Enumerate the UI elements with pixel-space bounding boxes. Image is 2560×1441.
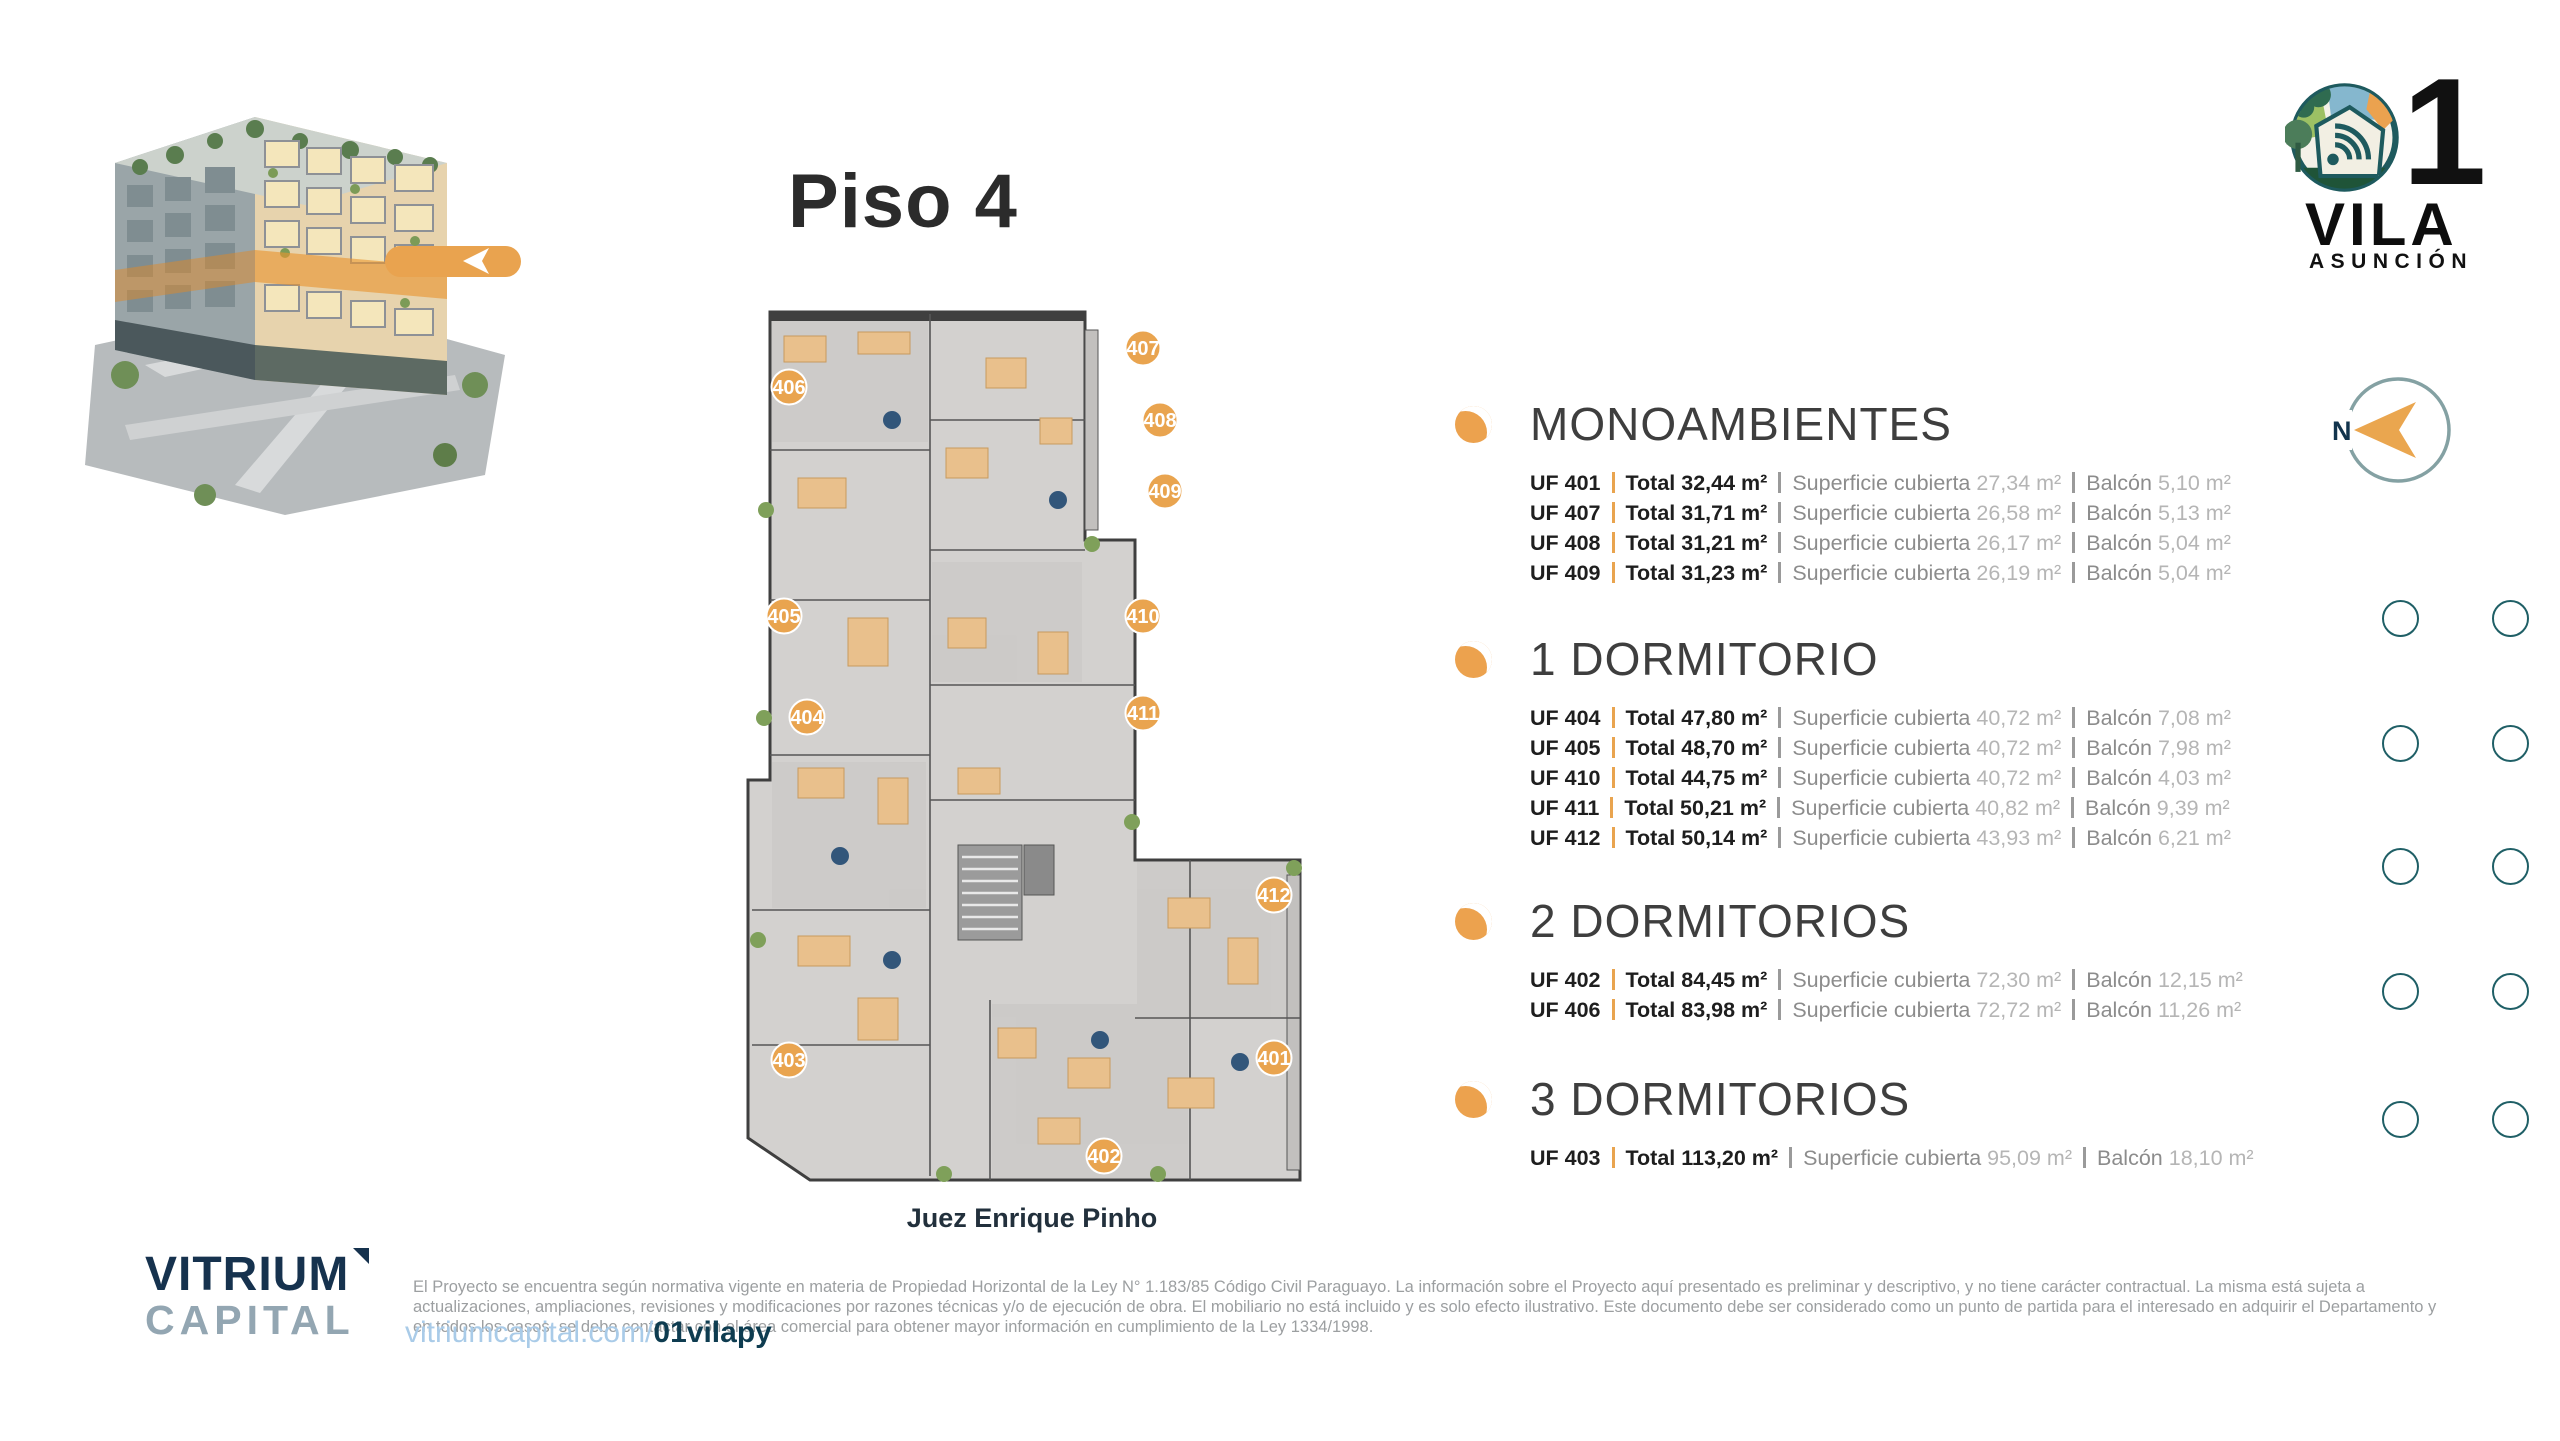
svg-text:401: 401 (1257, 1048, 1290, 1070)
separator (1612, 707, 1615, 728)
section-3-dormitorios: 3 DORMITORIOSUF 403Total 113,20 m²Superf… (1455, 1073, 2415, 1173)
section-bullet-icon (1455, 406, 1492, 443)
unit-uf: UF 407 (1530, 501, 1601, 525)
unit-badge-408[interactable]: 408 (1143, 403, 1178, 438)
unit-bal_label: Balcón (2097, 1146, 2163, 1170)
separator (2072, 707, 2075, 728)
svg-text:410: 410 (1126, 606, 1159, 628)
separator (1778, 737, 1781, 758)
unit-bal_label: Balcón (2085, 796, 2151, 820)
unit-bal: 5,13 m² (2158, 501, 2231, 525)
unit-total: Total 83,98 m² (1626, 998, 1768, 1022)
website-slug[interactable]: 01vilapy (653, 1316, 771, 1349)
unit-sup: 40,72 m² (1976, 706, 2061, 730)
unit-sup_label: Superficie cubierta (1792, 501, 1970, 525)
compass: N (2328, 360, 2468, 500)
unit-bal_label: Balcón (2086, 706, 2152, 730)
unit-bal: 5,10 m² (2158, 471, 2231, 495)
floorplan: 406407408409405410404411412403401402 Jue… (740, 300, 1310, 1240)
unit-sup: 26,17 m² (1976, 531, 2061, 555)
separator (1612, 502, 1615, 523)
separator (1612, 999, 1615, 1020)
floor-dot[interactable] (2382, 725, 2419, 762)
unit-total: Total 113,20 m² (1626, 1146, 1779, 1170)
unit-bal_label: Balcón (2086, 531, 2152, 555)
unit-sup: 40,72 m² (1976, 766, 2061, 790)
floor-dot[interactable] (2492, 848, 2529, 885)
unit-bal_label: Balcón (2086, 471, 2152, 495)
unit-row: UF 410Total 44,75 m²Superficie cubierta … (1530, 763, 2415, 793)
section-title: MONOAMBIENTES (1530, 398, 1952, 450)
unit-total: Total 50,21 m² (1624, 796, 1766, 820)
svg-text:412: 412 (1257, 885, 1290, 907)
separator (2083, 1147, 2086, 1168)
unit-total: Total 32,44 m² (1626, 471, 1768, 495)
separator (1612, 532, 1615, 553)
unit-bal_label: Balcón (2086, 766, 2152, 790)
unit-bal_label: Balcón (2086, 736, 2152, 760)
separator (1778, 562, 1781, 583)
unit-badge-404[interactable]: 404 (790, 700, 825, 735)
unit-bal: 4,03 m² (2158, 766, 2231, 790)
unit-bal: 11,26 m² (2158, 998, 2241, 1022)
developer-name-line2: CAPITAL (145, 1298, 355, 1342)
brand-number: 1 (2402, 56, 2487, 208)
unit-uf: UF 402 (1530, 968, 1601, 992)
building-rendering (55, 45, 535, 520)
floor-dot[interactable] (2492, 600, 2529, 637)
section-bullet-icon (1455, 903, 1492, 940)
unit-badge-411[interactable]: 411 (1126, 696, 1161, 731)
unit-uf: UF 410 (1530, 766, 1601, 790)
website-link[interactable]: vitriumcapital.com/01vilapy (405, 1316, 772, 1350)
separator (2072, 999, 2075, 1020)
unit-sup: 95,09 m² (1987, 1146, 2072, 1170)
floor-dot[interactable] (2492, 1101, 2529, 1138)
svg-text:406: 406 (772, 377, 805, 399)
separator (1610, 797, 1613, 818)
separator (2072, 532, 2075, 553)
developer-name-line1: VITRIUM (145, 1252, 355, 1298)
unit-sup_label: Superficie cubierta (1792, 471, 1970, 495)
compass-north-label: N (2332, 416, 2352, 446)
separator (1778, 707, 1781, 728)
unit-sup_label: Superficie cubierta (1792, 998, 1970, 1022)
unit-total: Total 48,70 m² (1626, 736, 1768, 760)
unit-bal_label: Balcón (2086, 968, 2152, 992)
unit-badge-410[interactable]: 410 (1126, 599, 1161, 634)
separator (1612, 562, 1615, 583)
floor-dot[interactable] (2382, 848, 2419, 885)
separator (2072, 969, 2075, 990)
street-label: Juez Enrique Pinho (907, 1203, 1158, 1233)
vila-logo-icon (2285, 78, 2405, 198)
unit-badge-401[interactable]: 401 (1257, 1041, 1292, 1076)
separator (1778, 472, 1781, 493)
unit-sup: 26,58 m² (1976, 501, 2061, 525)
unit-bal: 5,04 m² (2158, 531, 2231, 555)
unit-bal: 9,39 m² (2157, 796, 2230, 820)
unit-bal_label: Balcón (2086, 826, 2152, 850)
unit-row: UF 409Total 31,23 m²Superficie cubierta … (1530, 558, 2415, 588)
separator (1778, 969, 1781, 990)
unit-badge-409[interactable]: 409 (1148, 474, 1183, 509)
developer-logo: VITRIUM CAPITAL (145, 1252, 355, 1342)
unit-uf: UF 409 (1530, 561, 1601, 585)
section-title: 2 DORMITORIOS (1530, 895, 1910, 947)
unit-sup_label: Superficie cubierta (1792, 826, 1970, 850)
separator (1612, 472, 1615, 493)
unit-uf: UF 408 (1530, 531, 1601, 555)
unit-total: Total 44,75 m² (1626, 766, 1768, 790)
separator (1778, 827, 1781, 848)
brand-name: VILA (2305, 190, 2458, 259)
separator (1612, 969, 1615, 990)
separator (2072, 502, 2075, 523)
unit-bal_label: Balcón (2086, 998, 2152, 1022)
svg-text:408: 408 (1143, 410, 1176, 432)
unit-uf: UF 401 (1530, 471, 1601, 495)
unit-sup: 43,93 m² (1976, 826, 2061, 850)
separator (2072, 767, 2075, 788)
unit-row: UF 403Total 113,20 m²Superficie cubierta… (1530, 1143, 2415, 1173)
unit-total: Total 31,23 m² (1626, 561, 1768, 585)
svg-text:409: 409 (1148, 481, 1181, 503)
section-title: 3 DORMITORIOS (1530, 1073, 1910, 1125)
unit-badge-402[interactable]: 402 (1087, 1139, 1122, 1174)
floor-dot[interactable] (2492, 725, 2529, 762)
svg-text:403: 403 (772, 1050, 805, 1072)
unit-total: Total 50,14 m² (1626, 826, 1768, 850)
separator (1778, 999, 1781, 1020)
svg-text:402: 402 (1087, 1146, 1120, 1168)
unit-sup_label: Superficie cubierta (1803, 1146, 1981, 1170)
unit-bal: 18,10 m² (2169, 1146, 2254, 1170)
unit-sup: 72,72 m² (1976, 998, 2061, 1022)
brand-city: ASUNCIÓN (2309, 250, 2473, 274)
floor-dot[interactable] (2382, 1101, 2419, 1138)
svg-text:405: 405 (767, 606, 800, 628)
separator (1778, 532, 1781, 553)
unit-row: UF 405Total 48,70 m²Superficie cubierta … (1530, 733, 2415, 763)
unit-row: UF 404Total 47,80 m²Superficie cubierta … (1530, 703, 2415, 733)
unit-bal: 7,08 m² (2158, 706, 2231, 730)
unit-bal: 6,21 m² (2158, 826, 2231, 850)
unit-total: Total 31,71 m² (1626, 501, 1768, 525)
section-monoambientes: MONOAMBIENTESUF 401Total 32,44 m²Superfi… (1455, 398, 2415, 588)
svg-text:404: 404 (790, 707, 824, 729)
unit-sup: 40,72 m² (1976, 736, 2061, 760)
unit-sup_label: Superficie cubierta (1792, 968, 1970, 992)
svg-text:407: 407 (1126, 338, 1159, 360)
section-title: 1 DORMITORIO (1530, 633, 1879, 685)
unit-uf: UF 412 (1530, 826, 1601, 850)
section-bullet-icon (1455, 641, 1492, 678)
section-2-dormitorios: 2 DORMITORIOSUF 402Total 84,45 m²Superfi… (1455, 895, 2415, 1025)
unit-badge-403[interactable]: 403 (772, 1043, 807, 1078)
unit-bal_label: Balcón (2086, 501, 2152, 525)
unit-badge-406[interactable]: 406 (772, 370, 807, 405)
unit-uf: UF 404 (1530, 706, 1601, 730)
unit-uf: UF 406 (1530, 998, 1601, 1022)
floor-dot[interactable] (2382, 973, 2419, 1010)
floor-indicator-arrow[interactable] (385, 246, 521, 277)
unit-sup_label: Superficie cubierta (1792, 766, 1970, 790)
unit-uf: UF 403 (1530, 1146, 1601, 1170)
floor-dot[interactable] (2492, 973, 2529, 1010)
section-1-dormitorio: 1 DORMITORIOUF 404Total 47,80 m²Superfic… (1455, 633, 2415, 853)
separator (1778, 767, 1781, 788)
unit-row: UF 402Total 84,45 m²Superficie cubierta … (1530, 965, 2415, 995)
unit-sup: 40,82 m² (1975, 796, 2060, 820)
unit-sup_label: Superficie cubierta (1792, 736, 1970, 760)
unit-bal: 7,98 m² (2158, 736, 2231, 760)
unit-sup_label: Superficie cubierta (1792, 706, 1970, 730)
unit-row: UF 408Total 31,21 m²Superficie cubierta … (1530, 528, 2415, 558)
unit-total: Total 47,80 m² (1626, 706, 1768, 730)
separator (2071, 797, 2074, 818)
unit-total: Total 31,21 m² (1626, 531, 1768, 555)
unit-uf: UF 405 (1530, 736, 1601, 760)
separator (1612, 827, 1615, 848)
unit-row: UF 407Total 31,71 m²Superficie cubierta … (1530, 498, 2415, 528)
separator (1612, 737, 1615, 758)
separator (1612, 1147, 1615, 1168)
unit-sup_label: Superficie cubierta (1792, 531, 1970, 555)
unit-bal_label: Balcón (2086, 561, 2152, 585)
unit-badge-405[interactable]: 405 (767, 599, 802, 634)
separator (1612, 767, 1615, 788)
website-base[interactable]: vitriumcapital.com/ (405, 1316, 653, 1349)
project-logo: 1 VILA ASUNCIÓN (2285, 78, 2515, 288)
separator (2072, 737, 2075, 758)
unit-bal: 5,04 m² (2158, 561, 2231, 585)
unit-bal: 12,15 m² (2158, 968, 2243, 992)
unit-row: UF 411Total 50,21 m²Superficie cubierta … (1530, 793, 2415, 823)
separator (1789, 1147, 1792, 1168)
page-title: Piso 4 (788, 158, 1018, 245)
unit-row: UF 401Total 32,44 m²Superficie cubierta … (1530, 468, 2415, 498)
separator (1777, 797, 1780, 818)
unit-uf: UF 411 (1530, 796, 1599, 820)
unit-sup: 27,34 m² (1976, 471, 2061, 495)
unit-sup: 26,19 m² (1976, 561, 2061, 585)
unit-total: Total 84,45 m² (1626, 968, 1768, 992)
unit-row: UF 412Total 50,14 m²Superficie cubierta … (1530, 823, 2415, 853)
compass-arrow-icon (2354, 402, 2416, 458)
unit-badge-407[interactable]: 407 (1126, 331, 1161, 366)
unit-row: UF 406Total 83,98 m²Superficie cubierta … (1530, 995, 2415, 1025)
separator (2072, 562, 2075, 583)
separator (1778, 502, 1781, 523)
svg-text:411: 411 (1127, 703, 1159, 725)
floor-dot[interactable] (2382, 600, 2419, 637)
section-bullet-icon (1455, 1081, 1492, 1118)
unit-sup_label: Superficie cubierta (1791, 796, 1969, 820)
unit-sup_label: Superficie cubierta (1792, 561, 1970, 585)
vitrium-arrow-icon (353, 1248, 369, 1264)
separator (2072, 827, 2075, 848)
unit-sup: 72,30 m² (1976, 968, 2061, 992)
unit-badge-412[interactable]: 412 (1257, 878, 1292, 913)
separator (2072, 472, 2075, 493)
